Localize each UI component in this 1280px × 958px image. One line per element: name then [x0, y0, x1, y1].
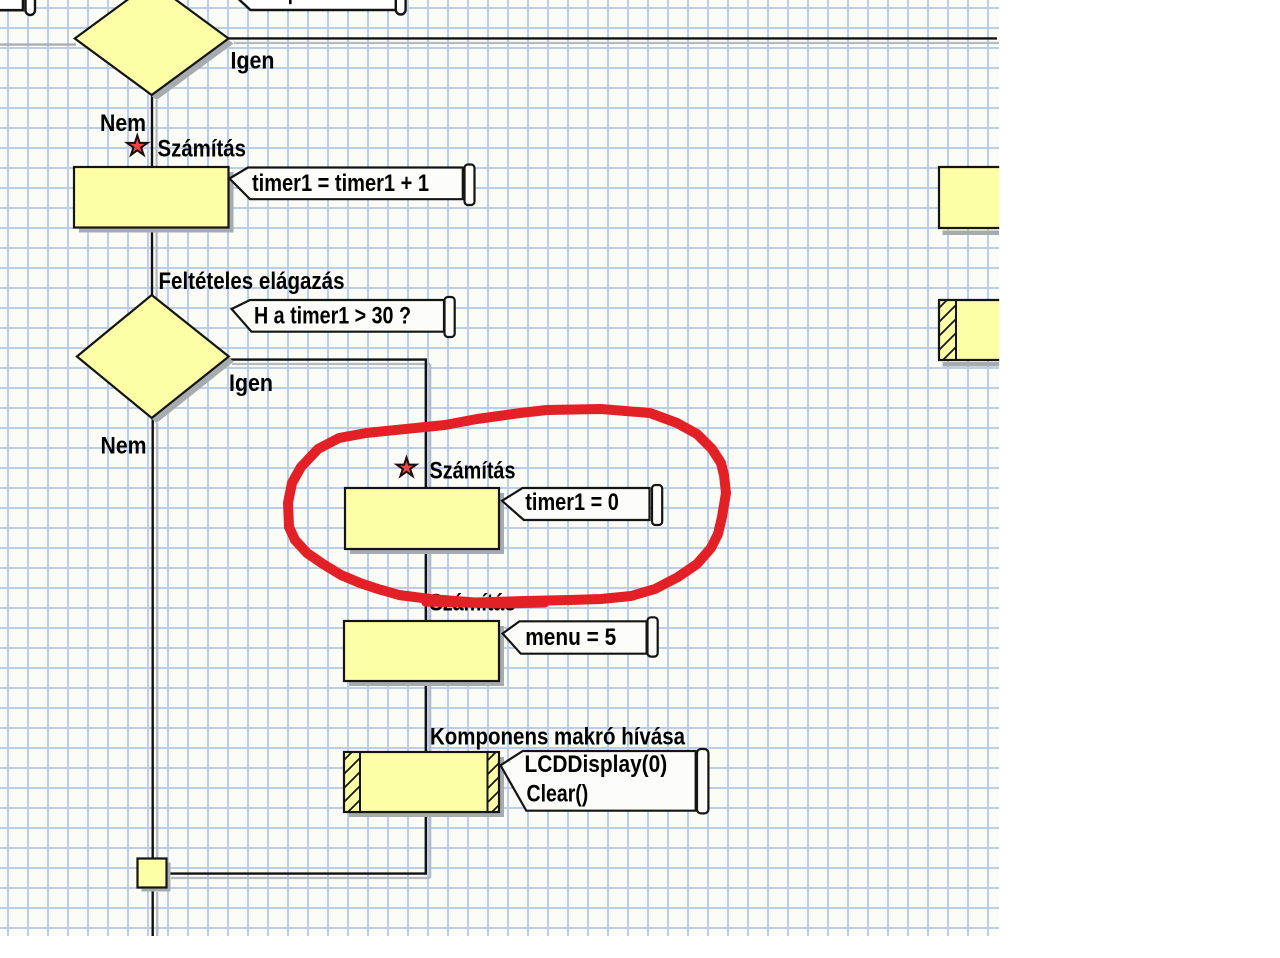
- svg-text:Feltételes elágazás: Feltételes elágazás: [159, 268, 345, 295]
- svg-text:Számítás: Számítás: [430, 458, 516, 485]
- svg-text:Clear(): Clear(): [527, 781, 589, 808]
- svg-text:timer1 = timer1 + 1: timer1 = timer1 + 1: [252, 170, 429, 197]
- svg-text:LCDDisplay(0): LCDDisplay(0): [525, 751, 668, 778]
- svg-text:Számítás: Számítás: [158, 136, 247, 163]
- svg-text:Igen: Igen: [231, 47, 275, 74]
- svg-text:Nem: Nem: [101, 432, 147, 459]
- svg-text:Nem: Nem: [100, 110, 146, 137]
- svg-text:Igen: Igen: [229, 370, 273, 397]
- svg-text:timer1 = 0: timer1 = 0: [525, 489, 619, 516]
- svg-text:Komponens makró hívása: Komponens makró hívása: [430, 724, 686, 751]
- svg-text:H a timer1 > 30 ?: H a timer1 > 30 ?: [254, 303, 411, 330]
- svg-text:menu = 5: menu = 5: [525, 624, 616, 651]
